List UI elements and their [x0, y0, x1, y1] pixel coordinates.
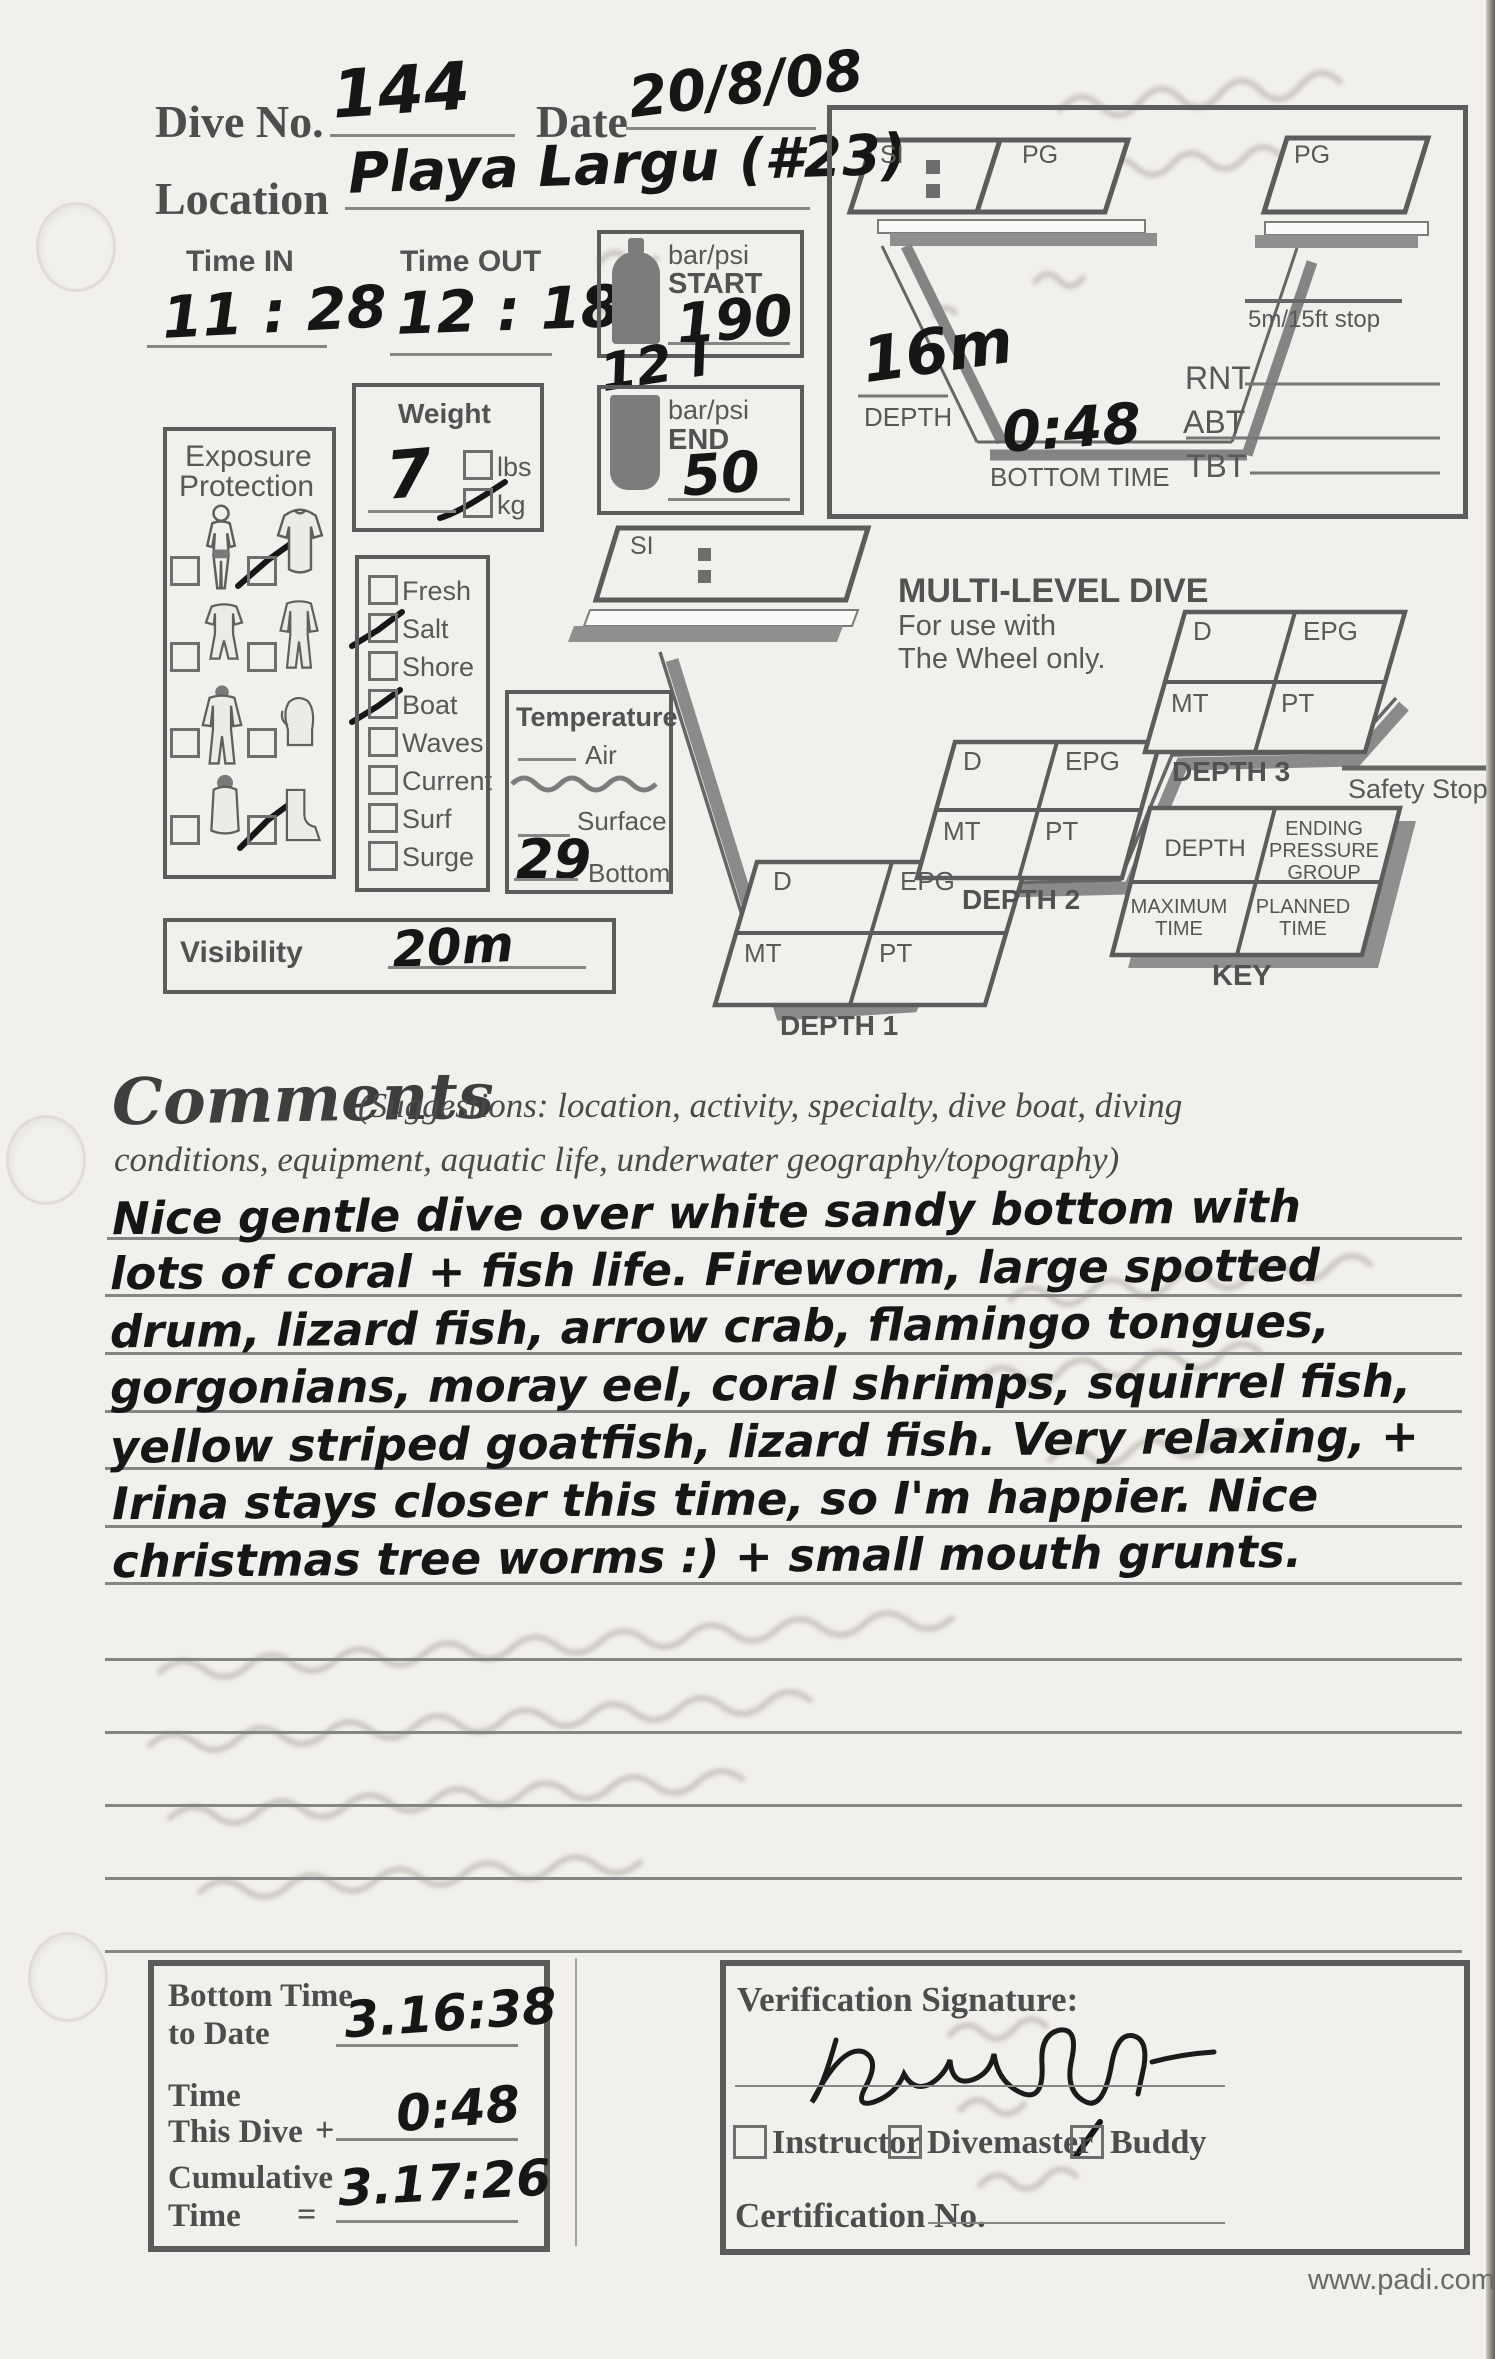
- current-checkbox: [368, 765, 398, 795]
- surf-label: Surf: [402, 804, 452, 835]
- dive-no-value: 144: [329, 47, 472, 133]
- pressure-end-unit-label: bar/psi: [668, 395, 749, 426]
- dive-log-page: Dive No. 144 Date 20/8/08 Location Playa…: [0, 0, 1495, 2359]
- bottom-line: [514, 878, 578, 881]
- weight-lbs-label: lbs: [497, 452, 532, 483]
- buddy-label: Buddy: [1110, 2124, 1206, 2162]
- depth3-cell-epg: EPG: [1303, 616, 1358, 647]
- comment-line: christmas tree worms :) + small mouth gr…: [112, 1525, 1302, 1588]
- pg-label-2: PG: [1294, 141, 1330, 170]
- air-line: [518, 758, 576, 761]
- temperature-title: Temperature: [516, 702, 678, 733]
- water-surface-icon: [510, 772, 660, 794]
- exposure-shorty-checkbox: [170, 642, 200, 672]
- depth1-cell-epg: EPG: [900, 866, 955, 897]
- verification-title: Verification Signature:: [737, 1980, 1078, 2020]
- comments-suggestions-1: (Suggestions: location, activity, specia…: [358, 1086, 1182, 1126]
- gloves-icon: [278, 692, 322, 754]
- weight-kg-checkbox: [463, 488, 493, 518]
- totals-line-1: [336, 2044, 518, 2047]
- comment-rule: [105, 1804, 1462, 1807]
- surge-label: Surge: [402, 842, 474, 873]
- certification-line: [928, 2222, 1225, 2224]
- divemaster-checkbox: [888, 2125, 922, 2159]
- surf-checkbox: [368, 803, 398, 833]
- boots-icon: [276, 778, 324, 852]
- salt-label: Salt: [402, 614, 449, 645]
- key-cell-planned-time: PLANNED TIME: [1240, 896, 1366, 940]
- pressure-end-line: [668, 498, 790, 501]
- tank-valve-icon: [628, 238, 644, 254]
- boat-label: Boat: [402, 690, 458, 721]
- comments-suggestions-2: conditions, equipment, aquatic life, und…: [114, 1140, 1119, 1180]
- depth1-label: DEPTH 1: [780, 1010, 898, 1042]
- depth1-cell-pt: PT: [879, 938, 912, 969]
- time-this-dive-value: 0:48: [394, 2075, 523, 2144]
- waves-checkbox: [368, 727, 398, 757]
- exposure-boots-checkbox: [247, 815, 277, 845]
- exposure-fullsuit-checkbox: [247, 642, 277, 672]
- current-label: Current: [402, 766, 492, 797]
- hooded-wetsuit-icon: [196, 678, 248, 772]
- buddy-checkbox: [1070, 2125, 1104, 2159]
- signature-line: [735, 2085, 1225, 2087]
- depth2-cell-pt: PT: [1045, 816, 1078, 847]
- shore-checkbox: [368, 651, 398, 681]
- location-label: Location: [155, 172, 329, 225]
- plus-operator: +: [315, 2112, 334, 2150]
- exposure-gloves-checkbox: [247, 728, 277, 758]
- padi-url: www.padi.com: [1308, 2264, 1495, 2297]
- time-in-line: [147, 345, 327, 348]
- divemaster-label: Divemaster: [927, 2124, 1093, 2162]
- depth3-cell-d: D: [1193, 616, 1212, 647]
- cumulative-value: 3.17:26: [337, 2148, 553, 2217]
- time-out-line: [390, 353, 552, 356]
- comment-line: gorgonians, moray eel, coral shrimps, sq…: [110, 1355, 1411, 1415]
- multilevel-si-label: SI: [630, 532, 654, 561]
- depth3-cell-pt: PT: [1281, 688, 1314, 719]
- salt-checkbox: [368, 613, 398, 643]
- fresh-checkbox: [368, 575, 398, 605]
- multilevel-title: MULTI-LEVEL DIVE: [898, 572, 1208, 611]
- depth2-label: DEPTH 2: [962, 884, 1080, 916]
- visibility-line: [388, 966, 586, 969]
- comment-line: drum, lizard fish, arrow crab, flamingo …: [110, 1295, 1330, 1359]
- time-in-label: Time IN: [186, 245, 294, 279]
- depth3-label: DEPTH 3: [1172, 756, 1290, 788]
- depth1-cell-d: D: [773, 866, 792, 897]
- equals-operator: =: [297, 2196, 316, 2234]
- cumulative-label-1: Cumulative: [168, 2160, 333, 2197]
- depth2-cell-mt: MT: [943, 816, 981, 847]
- comment-rule: [105, 1950, 1462, 1953]
- cumulative-label-2: Time: [168, 2198, 241, 2235]
- exposure-title-1: Exposure: [185, 440, 312, 474]
- abt-label: ABT: [1183, 404, 1245, 441]
- depth3-cell-mt: MT: [1171, 688, 1209, 719]
- si-label: SI: [880, 141, 904, 170]
- comment-rule: [105, 1731, 1462, 1734]
- depth2-cell-d: D: [963, 746, 982, 777]
- weight-line: [368, 510, 456, 513]
- hooded-vest-icon: [200, 768, 250, 850]
- pressure-unit-label: bar/psi: [668, 240, 749, 271]
- key-label: KEY: [1212, 960, 1272, 993]
- boat-checkbox: [368, 689, 398, 719]
- depth1-cell-mt: MT: [744, 938, 782, 969]
- stop-label: 5m/15ft stop: [1248, 306, 1380, 334]
- shorty-wetsuit-icon: [198, 594, 250, 678]
- location-line: [345, 207, 810, 210]
- bottom-time-value: 0:48: [1000, 391, 1143, 466]
- time-out-label: Time OUT: [400, 245, 541, 279]
- bottom-time-to-date-label-1: Bottom Time: [168, 1978, 353, 2015]
- depth2-cell-epg: EPG: [1065, 746, 1120, 777]
- waves-label: Waves: [402, 728, 484, 759]
- tank-bottom-icon: [610, 395, 660, 490]
- time-this-dive-label-1: Time: [168, 2078, 241, 2115]
- comment-rule: [105, 1658, 1462, 1661]
- pg-label-1: PG: [1022, 141, 1058, 170]
- time-this-dive-label-2: This Dive: [168, 2114, 303, 2151]
- multilevel-subtitle-2: The Wheel only.: [898, 643, 1105, 676]
- shore-label: Shore: [402, 652, 474, 683]
- exposure-title-2: Protection: [179, 470, 314, 504]
- full-wetsuit-icon: [274, 590, 324, 680]
- time-in-value: 11 : 28: [160, 272, 388, 352]
- bottom-label: Bottom: [588, 858, 670, 889]
- totals-line-3: [336, 2220, 518, 2223]
- time-out-value: 12 : 18: [395, 272, 622, 348]
- depth-label: DEPTH: [864, 402, 952, 433]
- key-cell-max-time: MAXIMUM TIME: [1118, 896, 1240, 940]
- swimsuit-icon: [196, 500, 246, 594]
- rash-guard-icon: [272, 506, 328, 584]
- instructor-checkbox: [733, 2125, 767, 2159]
- key-cell-depth: DEPTH: [1150, 838, 1260, 860]
- air-label: Air: [585, 740, 617, 771]
- bottom-time-to-date-label-2: to Date: [168, 2016, 270, 2053]
- tbt-label: TBT: [1186, 448, 1246, 485]
- certification-label: Certification No.: [735, 2196, 986, 2236]
- comment-line: Irina stays closer this time, so I'm hap…: [112, 1469, 1319, 1530]
- fold-line: [575, 1958, 577, 2246]
- rnt-label: RNT: [1185, 360, 1251, 397]
- totals-line-2: [336, 2138, 518, 2141]
- weight-kg-label: kg: [497, 490, 526, 521]
- key-cell-epg: ENDING PRESSURE GROUP: [1258, 818, 1390, 884]
- multilevel-subtitle-1: For use with: [898, 610, 1056, 643]
- dive-no-label: Dive No.: [155, 95, 324, 148]
- visibility-label: Visibility: [180, 936, 303, 970]
- bottom-time-label: BOTTOM TIME: [990, 462, 1170, 493]
- tank-icon: [612, 252, 660, 344]
- safety-stop-label: Safety Stop: [1348, 774, 1488, 805]
- fresh-label: Fresh: [402, 576, 471, 607]
- weight-value: 7: [383, 434, 435, 515]
- visibility-value: 20m: [391, 915, 516, 979]
- weight-lbs-checkbox: [463, 450, 493, 480]
- bottom-temp-value: 29: [516, 828, 591, 891]
- exposure-hooded-vest-checkbox: [170, 815, 200, 845]
- weight-label: Weight: [398, 398, 491, 430]
- comment-rule: [105, 1877, 1462, 1880]
- surge-checkbox: [368, 841, 398, 871]
- comment-line: lots of coral + fish life. Fireworm, lar…: [110, 1239, 1320, 1300]
